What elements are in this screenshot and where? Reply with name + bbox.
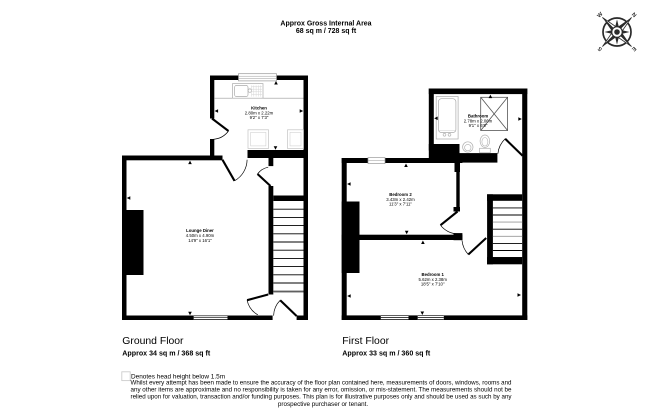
svg-text:9'1" x 6'9": 9'1" x 6'9" [469, 123, 488, 128]
svg-text:First Floor: First Floor [342, 336, 389, 347]
svg-text:prospective purchaser or tenan: prospective purchaser or tenant. [278, 401, 369, 408]
svg-text:14'9" x 16'1": 14'9" x 16'1" [188, 238, 212, 243]
svg-text:Whilst every attempt has been: Whilst every attempt has been made to en… [131, 380, 512, 387]
svg-text:Approx 33 sq m / 360 sq ft: Approx 33 sq m / 360 sq ft [342, 349, 431, 357]
svg-text:Ground Floor: Ground Floor [122, 336, 184, 347]
svg-text:relied upon for valuation, tra: relied upon for valuation, transaction a… [131, 394, 513, 401]
svg-text:Approx 34 sq m / 368 sq ft: Approx 34 sq m / 368 sq ft [122, 349, 211, 357]
svg-text:any other items are approximat: any other items are approximate and no r… [131, 387, 512, 394]
svg-text:68 sq m / 728 sq ft: 68 sq m / 728 sq ft [296, 28, 357, 35]
svg-text:11'3" x 7'11": 11'3" x 7'11" [389, 202, 412, 207]
svg-text:18'5" x 7'10": 18'5" x 7'10" [421, 282, 445, 287]
svg-text:Approx Gross Internal Area: Approx Gross Internal Area [280, 21, 371, 28]
svg-text:9'2" x 7'3": 9'2" x 7'3" [250, 115, 269, 120]
